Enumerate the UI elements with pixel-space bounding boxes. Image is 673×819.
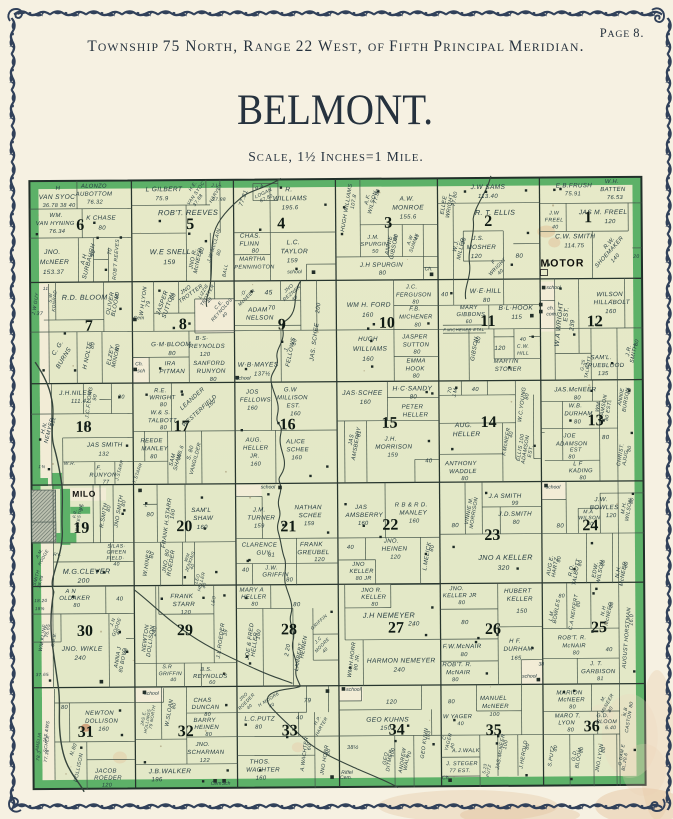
- svg-text:80: 80: [569, 704, 576, 710]
- svg-text:Ch.: Ch.: [135, 361, 143, 367]
- svg-text:40: 40: [457, 721, 464, 727]
- svg-text:40: 40: [347, 545, 355, 551]
- svg-text:80: 80: [452, 523, 460, 529]
- svg-text:W YAGER: W YAGER: [443, 714, 472, 720]
- svg-text:AMSBERRY: AMSBERRY: [344, 512, 383, 519]
- svg-text:sch: sch: [137, 368, 145, 374]
- svg-text:15: 15: [382, 415, 398, 432]
- svg-text:AUG.: AUG.: [245, 438, 262, 444]
- svg-text:CLARENCE: CLARENCE: [242, 542, 278, 548]
- svg-text:80: 80: [574, 395, 582, 401]
- svg-text:W·B·MAYES: W·B·MAYES: [238, 361, 279, 368]
- svg-text:80: 80: [513, 520, 521, 526]
- svg-text:BOWLES: BOWLES: [590, 504, 619, 511]
- svg-text:MARY A: MARY A: [239, 588, 264, 594]
- svg-text:SUTTON: SUTTON: [403, 342, 430, 348]
- svg-text:80: 80: [461, 476, 469, 482]
- svg-text:THOS.: THOS.: [250, 758, 271, 765]
- svg-text:NELSON: NELSON: [246, 314, 274, 321]
- svg-text:F.B.: F.B.: [409, 306, 420, 312]
- svg-text:80: 80: [61, 705, 69, 711]
- svg-text:80: 80: [461, 652, 469, 658]
- svg-text:J.H.: J.H.: [384, 437, 397, 443]
- svg-text:40: 40: [520, 337, 526, 343]
- svg-text:80: 80: [557, 523, 565, 529]
- svg-text:24: 24: [582, 517, 598, 534]
- svg-text:PETER: PETER: [402, 404, 424, 410]
- svg-text:240: 240: [407, 620, 420, 627]
- svg-text:80: 80: [210, 377, 218, 383]
- svg-text:80: 80: [412, 299, 419, 305]
- svg-text:80: 80: [552, 745, 559, 752]
- svg-text:80: 80: [252, 249, 260, 255]
- svg-text:160: 160: [291, 455, 302, 461]
- svg-text:36.78 38 40: 36.78 38 40: [43, 203, 77, 209]
- svg-text:37.65: 37.65: [36, 672, 49, 677]
- svg-text:H: H: [56, 186, 61, 192]
- svg-text:JNO. WIKLE: JNO. WIKLE: [61, 646, 103, 653]
- svg-text:MORRISON: MORRISON: [375, 443, 412, 450]
- svg-text:120: 120: [386, 700, 397, 706]
- svg-text:GARBISON: GARBISON: [581, 669, 616, 675]
- svg-text:MOSHER: MOSHER: [467, 244, 497, 251]
- svg-text:SANFORD: SANFORD: [193, 361, 225, 367]
- svg-text:ALICE: ALICE: [285, 439, 306, 445]
- svg-text:school: school: [261, 484, 276, 490]
- svg-text:33: 33: [282, 722, 298, 739]
- svg-text:NATHAN: NATHAN: [295, 504, 322, 511]
- svg-text:100: 100: [489, 712, 500, 718]
- svg-text:KELLER: KELLER: [361, 595, 386, 601]
- svg-text:school: school: [522, 674, 537, 680]
- svg-text:80: 80: [574, 419, 582, 425]
- svg-text:160: 160: [362, 356, 374, 363]
- svg-text:WADDLE: WADDLE: [449, 469, 477, 475]
- svg-text:80: 80: [575, 601, 582, 608]
- svg-text:J.W SAMS: J.W SAMS: [470, 184, 506, 191]
- svg-text:36: 36: [584, 718, 600, 735]
- svg-text:196: 196: [152, 777, 163, 783]
- svg-text:WILLIAMS: WILLIAMS: [353, 346, 388, 353]
- svg-text:CHAS.: CHAS.: [240, 233, 261, 240]
- svg-text:132: 132: [98, 452, 109, 458]
- svg-text:80: 80: [558, 593, 565, 599]
- svg-text:80: 80: [623, 561, 630, 568]
- svg-text:AUBOTTOM: AUBOTTOM: [75, 192, 113, 198]
- svg-text:HELLER: HELLER: [403, 412, 429, 418]
- svg-text:99: 99: [512, 501, 520, 507]
- svg-text:W·E·HILL: W·E·HILL: [470, 288, 502, 295]
- svg-text:TOWNSHIP 75 NORTH, RANGE 22 WE: TOWNSHIP 75 NORTH, RANGE 22 WEST, OF FIF…: [87, 38, 584, 55]
- svg-text:160: 160: [197, 525, 208, 531]
- svg-text:H F.: H F.: [509, 639, 521, 645]
- svg-text:FERGUSON: FERGUSON: [396, 292, 432, 298]
- svg-text:ADAM: ADAM: [247, 306, 268, 313]
- svg-text:WACHTER: WACHTER: [246, 766, 280, 773]
- svg-text:80: 80: [483, 298, 491, 304]
- svg-text:80: 80: [580, 475, 587, 481]
- svg-text:76.34: 76.34: [49, 229, 65, 235]
- svg-text:McNAIR: McNAIR: [562, 643, 586, 649]
- svg-text:80: 80: [600, 746, 607, 753]
- svg-text:6.40: 6.40: [605, 725, 616, 731]
- svg-text:W.& S.: W.& S.: [151, 410, 171, 416]
- svg-text:40: 40: [113, 562, 119, 568]
- svg-text:J.M.: J.M.: [252, 508, 266, 514]
- svg-text:31: 31: [78, 724, 94, 741]
- svg-text:WILLIAMS: WILLIAMS: [273, 195, 308, 202]
- svg-text:McNEER: McNEER: [482, 704, 509, 710]
- svg-text:80: 80: [371, 602, 378, 608]
- svg-text:4: 4: [277, 215, 285, 232]
- svg-text:HUBERT: HUBERT: [504, 588, 533, 595]
- svg-text:OLDAKER: OLDAKER: [59, 596, 90, 602]
- svg-text:JNO.: JNO.: [195, 742, 211, 748]
- svg-text:40: 40: [508, 431, 515, 438]
- svg-text:PITMAN: PITMAN: [159, 368, 185, 375]
- svg-text:60: 60: [306, 744, 313, 751]
- svg-text:40: 40: [552, 224, 559, 230]
- svg-text:160: 160: [247, 406, 258, 412]
- svg-text:76.32: 76.32: [87, 200, 104, 206]
- svg-text:SPURGIN: SPURGIN: [361, 242, 389, 248]
- svg-text:120: 120: [200, 352, 211, 358]
- svg-text:159: 159: [254, 524, 265, 530]
- svg-text:120: 120: [181, 610, 192, 616]
- svg-text:JAS SMITH: JAS SMITH: [86, 441, 123, 448]
- svg-text:SAM'L.: SAM'L.: [590, 355, 611, 361]
- svg-text:159: 159: [287, 258, 298, 264]
- svg-text:80: 80: [286, 577, 294, 583]
- svg-text:VAN HYNING: VAN HYNING: [36, 221, 75, 227]
- svg-text:80: 80: [524, 743, 531, 750]
- svg-text:28: 28: [281, 621, 297, 638]
- svg-text:160: 160: [251, 462, 262, 468]
- svg-text:MARO T.: MARO T.: [555, 713, 581, 719]
- svg-text:79: 79: [145, 300, 152, 308]
- svg-text:27: 27: [388, 620, 404, 637]
- svg-text:80: 80: [147, 512, 155, 518]
- svg-text:80: 80: [524, 393, 531, 400]
- svg-text:EST.: EST.: [287, 403, 301, 409]
- svg-text:80: 80: [600, 559, 607, 566]
- svg-text:HEINEN: HEINEN: [194, 725, 219, 731]
- svg-text:W.R.: W.R.: [64, 461, 76, 467]
- svg-text:MARY: MARY: [460, 305, 479, 311]
- svg-text:IRA: IRA: [165, 361, 176, 367]
- svg-text:JAS: JAS: [354, 505, 367, 511]
- svg-text:J. STEGER: J. STEGER: [445, 761, 478, 767]
- svg-text:ROB'T. R.: ROB'T. R.: [442, 662, 472, 668]
- svg-text:80: 80: [602, 435, 610, 441]
- svg-text:20: 20: [176, 518, 192, 535]
- svg-text:HELLER: HELLER: [241, 594, 267, 600]
- svg-text:Cem.: Cem.: [340, 775, 352, 781]
- svg-text:REEDE: REEDE: [140, 438, 163, 444]
- svg-text:80: 80: [414, 349, 422, 355]
- svg-text:R.E.: R.E.: [154, 388, 167, 394]
- svg-text:80: 80: [448, 699, 456, 705]
- svg-text:80: 80: [410, 394, 418, 400]
- svg-text:12: 12: [587, 313, 603, 330]
- svg-text:40: 40: [170, 677, 176, 683]
- svg-text:MANLEY: MANLEY: [141, 446, 168, 452]
- svg-text:20: 20: [632, 254, 639, 260]
- svg-text:40: 40: [441, 292, 449, 298]
- svg-text:MARTIN: MARTIN: [494, 359, 519, 365]
- svg-text:135: 135: [598, 371, 609, 377]
- svg-text:KELLER JR: KELLER JR: [443, 593, 477, 599]
- svg-text:A N: A N: [65, 589, 77, 595]
- svg-text:38: 38: [538, 662, 544, 668]
- svg-text:103: 103: [425, 730, 432, 740]
- svg-text:Ch.: Ch.: [425, 266, 433, 272]
- svg-text:MOTOR: MOTOR: [540, 257, 584, 269]
- svg-text:RUNYON: RUNYON: [89, 473, 117, 479]
- svg-text:J.B.WALKER: J.B.WALKER: [148, 768, 192, 775]
- svg-text:F.W.McNAIR: F.W.McNAIR: [443, 643, 482, 650]
- svg-text:McNEER: McNEER: [558, 697, 585, 703]
- svg-text:122: 122: [200, 758, 210, 764]
- svg-text:school: school: [236, 376, 251, 382]
- svg-text:165: 165: [511, 656, 522, 662]
- svg-text:AUG.: AUG.: [454, 422, 473, 429]
- svg-text:EST: EST: [570, 447, 582, 453]
- svg-text:120: 120: [606, 513, 617, 519]
- svg-text:80: 80: [567, 727, 574, 733]
- svg-text:R.: R.: [285, 186, 292, 193]
- svg-text:RY.: RY.: [53, 552, 61, 558]
- svg-text:JNO A KELLER: JNO A KELLER: [477, 553, 532, 562]
- svg-text:3: 3: [384, 215, 392, 232]
- svg-text:L.C.: L.C.: [287, 239, 301, 246]
- svg-text:MILLISON: MILLISON: [277, 395, 308, 401]
- svg-text:40: 40: [296, 715, 304, 721]
- svg-text:18¾: 18¾: [35, 606, 45, 611]
- svg-text:WILSON: WILSON: [596, 291, 623, 298]
- svg-text:7: 7: [85, 318, 93, 335]
- svg-text:80: 80: [168, 351, 176, 357]
- svg-text:HELLER: HELLER: [453, 431, 481, 438]
- svg-text:BARRY: BARRY: [194, 718, 217, 724]
- svg-text:JOE: JOE: [563, 433, 576, 439]
- svg-text:160: 160: [256, 776, 267, 782]
- svg-text:77 EST.: 77 EST.: [449, 768, 470, 774]
- svg-text:MICHENER: MICHENER: [399, 314, 433, 320]
- svg-text:79: 79: [304, 697, 312, 704]
- svg-text:J.W.: J.W.: [594, 497, 608, 503]
- svg-text:23: 23: [484, 527, 500, 544]
- svg-text:W.H.: W.H.: [605, 179, 619, 185]
- svg-text:113.40: 113.40: [478, 194, 498, 200]
- svg-text:SCHARMAN: SCHARMAN: [187, 750, 224, 756]
- svg-text:McNEER: McNEER: [40, 259, 69, 266]
- svg-text:81: 81: [597, 676, 604, 682]
- svg-text:80: 80: [413, 373, 421, 379]
- svg-text:115: 115: [512, 315, 523, 321]
- svg-text:160: 160: [362, 312, 374, 319]
- svg-text:80: 80: [251, 602, 258, 608]
- svg-text:77: 77: [103, 480, 110, 486]
- svg-text:J. T.: J. T.: [589, 661, 602, 667]
- svg-text:1¾: 1¾: [38, 464, 45, 469]
- svg-text:30: 30: [77, 623, 93, 640]
- svg-text:SCHEE: SCHEE: [299, 512, 323, 519]
- svg-text:45: 45: [265, 289, 273, 296]
- svg-text:Sch: Sch: [222, 781, 231, 787]
- svg-text:McNAIR: McNAIR: [446, 670, 471, 676]
- svg-text:80: 80: [325, 748, 332, 755]
- svg-text:16: 16: [280, 416, 296, 433]
- svg-text:80: 80: [556, 556, 563, 563]
- svg-text:DURHAM: DURHAM: [503, 646, 533, 653]
- svg-text:J.A SMITH: J.A SMITH: [488, 493, 522, 500]
- svg-text:18: 18: [76, 419, 92, 436]
- svg-text:80: 80: [452, 677, 459, 683]
- svg-text:JR.: JR.: [249, 454, 260, 460]
- svg-text:SHAW: SHAW: [193, 515, 214, 522]
- svg-text:ANTHONY: ANTHONY: [444, 461, 477, 467]
- svg-text:J.H SPURGIN: J.H SPURGIN: [359, 262, 404, 269]
- svg-text:B.S.: B.S.: [200, 667, 212, 673]
- svg-text:240: 240: [73, 655, 86, 662]
- svg-text:CHAS: CHAS: [193, 698, 211, 704]
- svg-text:J.D.SMITH: J.D.SMITH: [497, 511, 532, 518]
- svg-text:R.D. BLOOM: R.D. BLOOM: [62, 293, 108, 302]
- svg-text:40: 40: [425, 458, 433, 464]
- svg-text:137½: 137½: [254, 370, 270, 377]
- svg-text:L F: L F: [573, 461, 582, 467]
- svg-text:L GILBERT: L GILBERT: [146, 186, 183, 193]
- svg-text:80: 80: [293, 602, 301, 608]
- svg-text:FRANK: FRANK: [170, 593, 193, 600]
- svg-text:80: 80: [608, 601, 615, 608]
- svg-text:JNO.: JNO.: [383, 539, 399, 545]
- svg-text:JASPER: JASPER: [401, 334, 428, 340]
- svg-text:EMMA: EMMA: [406, 358, 425, 364]
- svg-text:60: 60: [466, 319, 473, 325]
- svg-text:school: school: [144, 691, 159, 697]
- svg-text:240: 240: [393, 667, 406, 674]
- svg-text:40: 40: [472, 387, 480, 393]
- svg-text:22: 22: [382, 517, 398, 534]
- svg-text:159: 159: [304, 521, 315, 527]
- svg-text:KELLER: KELLER: [507, 596, 533, 603]
- svg-text:80: 80: [379, 271, 387, 277]
- svg-text:153.37: 153.37: [43, 269, 64, 276]
- svg-text:80: 80: [255, 725, 263, 731]
- svg-text:MANUEL: MANUEL: [480, 696, 507, 702]
- svg-text:120: 120: [495, 346, 506, 352]
- svg-text:BELMONT.: BELMONT.: [237, 86, 433, 134]
- svg-text:40: 40: [116, 596, 124, 602]
- svg-text:120: 120: [605, 219, 616, 225]
- svg-text:80: 80: [573, 650, 580, 656]
- svg-text:A.W.: A.W.: [399, 195, 415, 202]
- svg-text:195.6: 195.6: [282, 205, 299, 211]
- svg-text:S.R: S.R: [162, 664, 172, 670]
- svg-text:160: 160: [98, 727, 109, 733]
- svg-text:LYON: LYON: [558, 720, 575, 726]
- svg-text:80: 80: [99, 226, 107, 232]
- svg-text:32: 32: [178, 723, 194, 740]
- svg-text:JACOB: JACOB: [94, 769, 117, 775]
- svg-text:R B & R D.: R B & R D.: [395, 502, 428, 508]
- svg-text:SAM'L: SAM'L: [191, 507, 211, 514]
- svg-text:75.9: 75.9: [155, 196, 168, 202]
- svg-text:80: 80: [516, 253, 524, 260]
- svg-text:25: 25: [591, 619, 607, 636]
- svg-text:FELLOWS: FELLOWS: [240, 397, 271, 403]
- svg-text:90: 90: [92, 394, 99, 401]
- svg-text:320: 320: [498, 565, 510, 572]
- svg-text:80: 80: [461, 620, 469, 626]
- svg-text:JNO.: JNO.: [448, 586, 464, 592]
- svg-text:80: 80: [626, 445, 633, 452]
- svg-text:FREEL: FREEL: [545, 217, 564, 223]
- svg-text:1: 1: [584, 209, 592, 226]
- svg-text:B·S·: B·S·: [196, 336, 209, 342]
- svg-text:Cem: Cem: [211, 781, 222, 787]
- svg-text:A.J.WALK: A.J.WALK: [451, 748, 480, 754]
- svg-text:114.75: 114.75: [564, 243, 584, 249]
- svg-text:Ch.: Ch.: [442, 775, 450, 781]
- svg-text:70: 70: [406, 751, 413, 758]
- svg-text:school: school: [287, 269, 302, 275]
- svg-text:160: 160: [409, 518, 420, 524]
- svg-text:J.W.: J.W.: [264, 565, 278, 571]
- svg-text:MONROE: MONROE: [392, 204, 424, 211]
- svg-text:G.W: G.W: [284, 387, 298, 393]
- svg-text:80 JR: 80 JR: [356, 576, 372, 582]
- svg-text:MARION: MARION: [556, 690, 582, 696]
- svg-text:L.C.PUTZ: L.C.PUTZ: [244, 715, 275, 722]
- svg-text:STARR: STARR: [173, 601, 196, 608]
- svg-text:J.C.: J.C.: [405, 284, 418, 290]
- svg-text:81: 81: [268, 552, 275, 558]
- svg-text:school: school: [546, 484, 561, 490]
- svg-text:JAS·SCHEE: JAS·SCHEE: [341, 390, 382, 397]
- svg-text:2: 2: [484, 213, 492, 230]
- svg-text:40: 40: [606, 647, 614, 653]
- svg-text:HOOK: HOOK: [406, 366, 426, 372]
- svg-text:80: 80: [121, 500, 128, 507]
- svg-text:160: 160: [360, 400, 371, 406]
- svg-text:WM H. FORD: WM H. FORD: [347, 302, 391, 309]
- svg-text:76.53: 76.53: [607, 195, 624, 201]
- svg-text:DUNCAN: DUNCAN: [192, 705, 220, 711]
- svg-text:80: 80: [160, 425, 168, 431]
- svg-text:JOS: JOS: [245, 390, 259, 396]
- svg-text:80: 80: [73, 603, 80, 609]
- svg-text:J.M.: J.M.: [366, 235, 379, 241]
- svg-text:75.91: 75.91: [565, 191, 581, 197]
- svg-text:PENNINGTON: PENNINGTON: [234, 264, 274, 270]
- svg-text:39: 39: [223, 629, 230, 636]
- svg-text:PAGE 8.: PAGE 8.: [600, 26, 645, 40]
- svg-text:R. T. ELLIS: R. T. ELLIS: [475, 208, 515, 217]
- svg-text:50: 50: [372, 249, 379, 255]
- svg-text:80: 80: [568, 454, 575, 460]
- svg-text:BATTEN: BATTEN: [600, 187, 626, 193]
- svg-text:80: 80: [628, 701, 635, 708]
- svg-text:81: 81: [356, 430, 363, 437]
- svg-text:14: 14: [481, 414, 497, 431]
- svg-text:WM.: WM.: [49, 213, 62, 219]
- svg-text:HEINEN: HEINEN: [382, 546, 408, 553]
- svg-text:MARTHA: MARTHA: [239, 256, 265, 262]
- svg-text:37.88: 37.88: [212, 197, 226, 203]
